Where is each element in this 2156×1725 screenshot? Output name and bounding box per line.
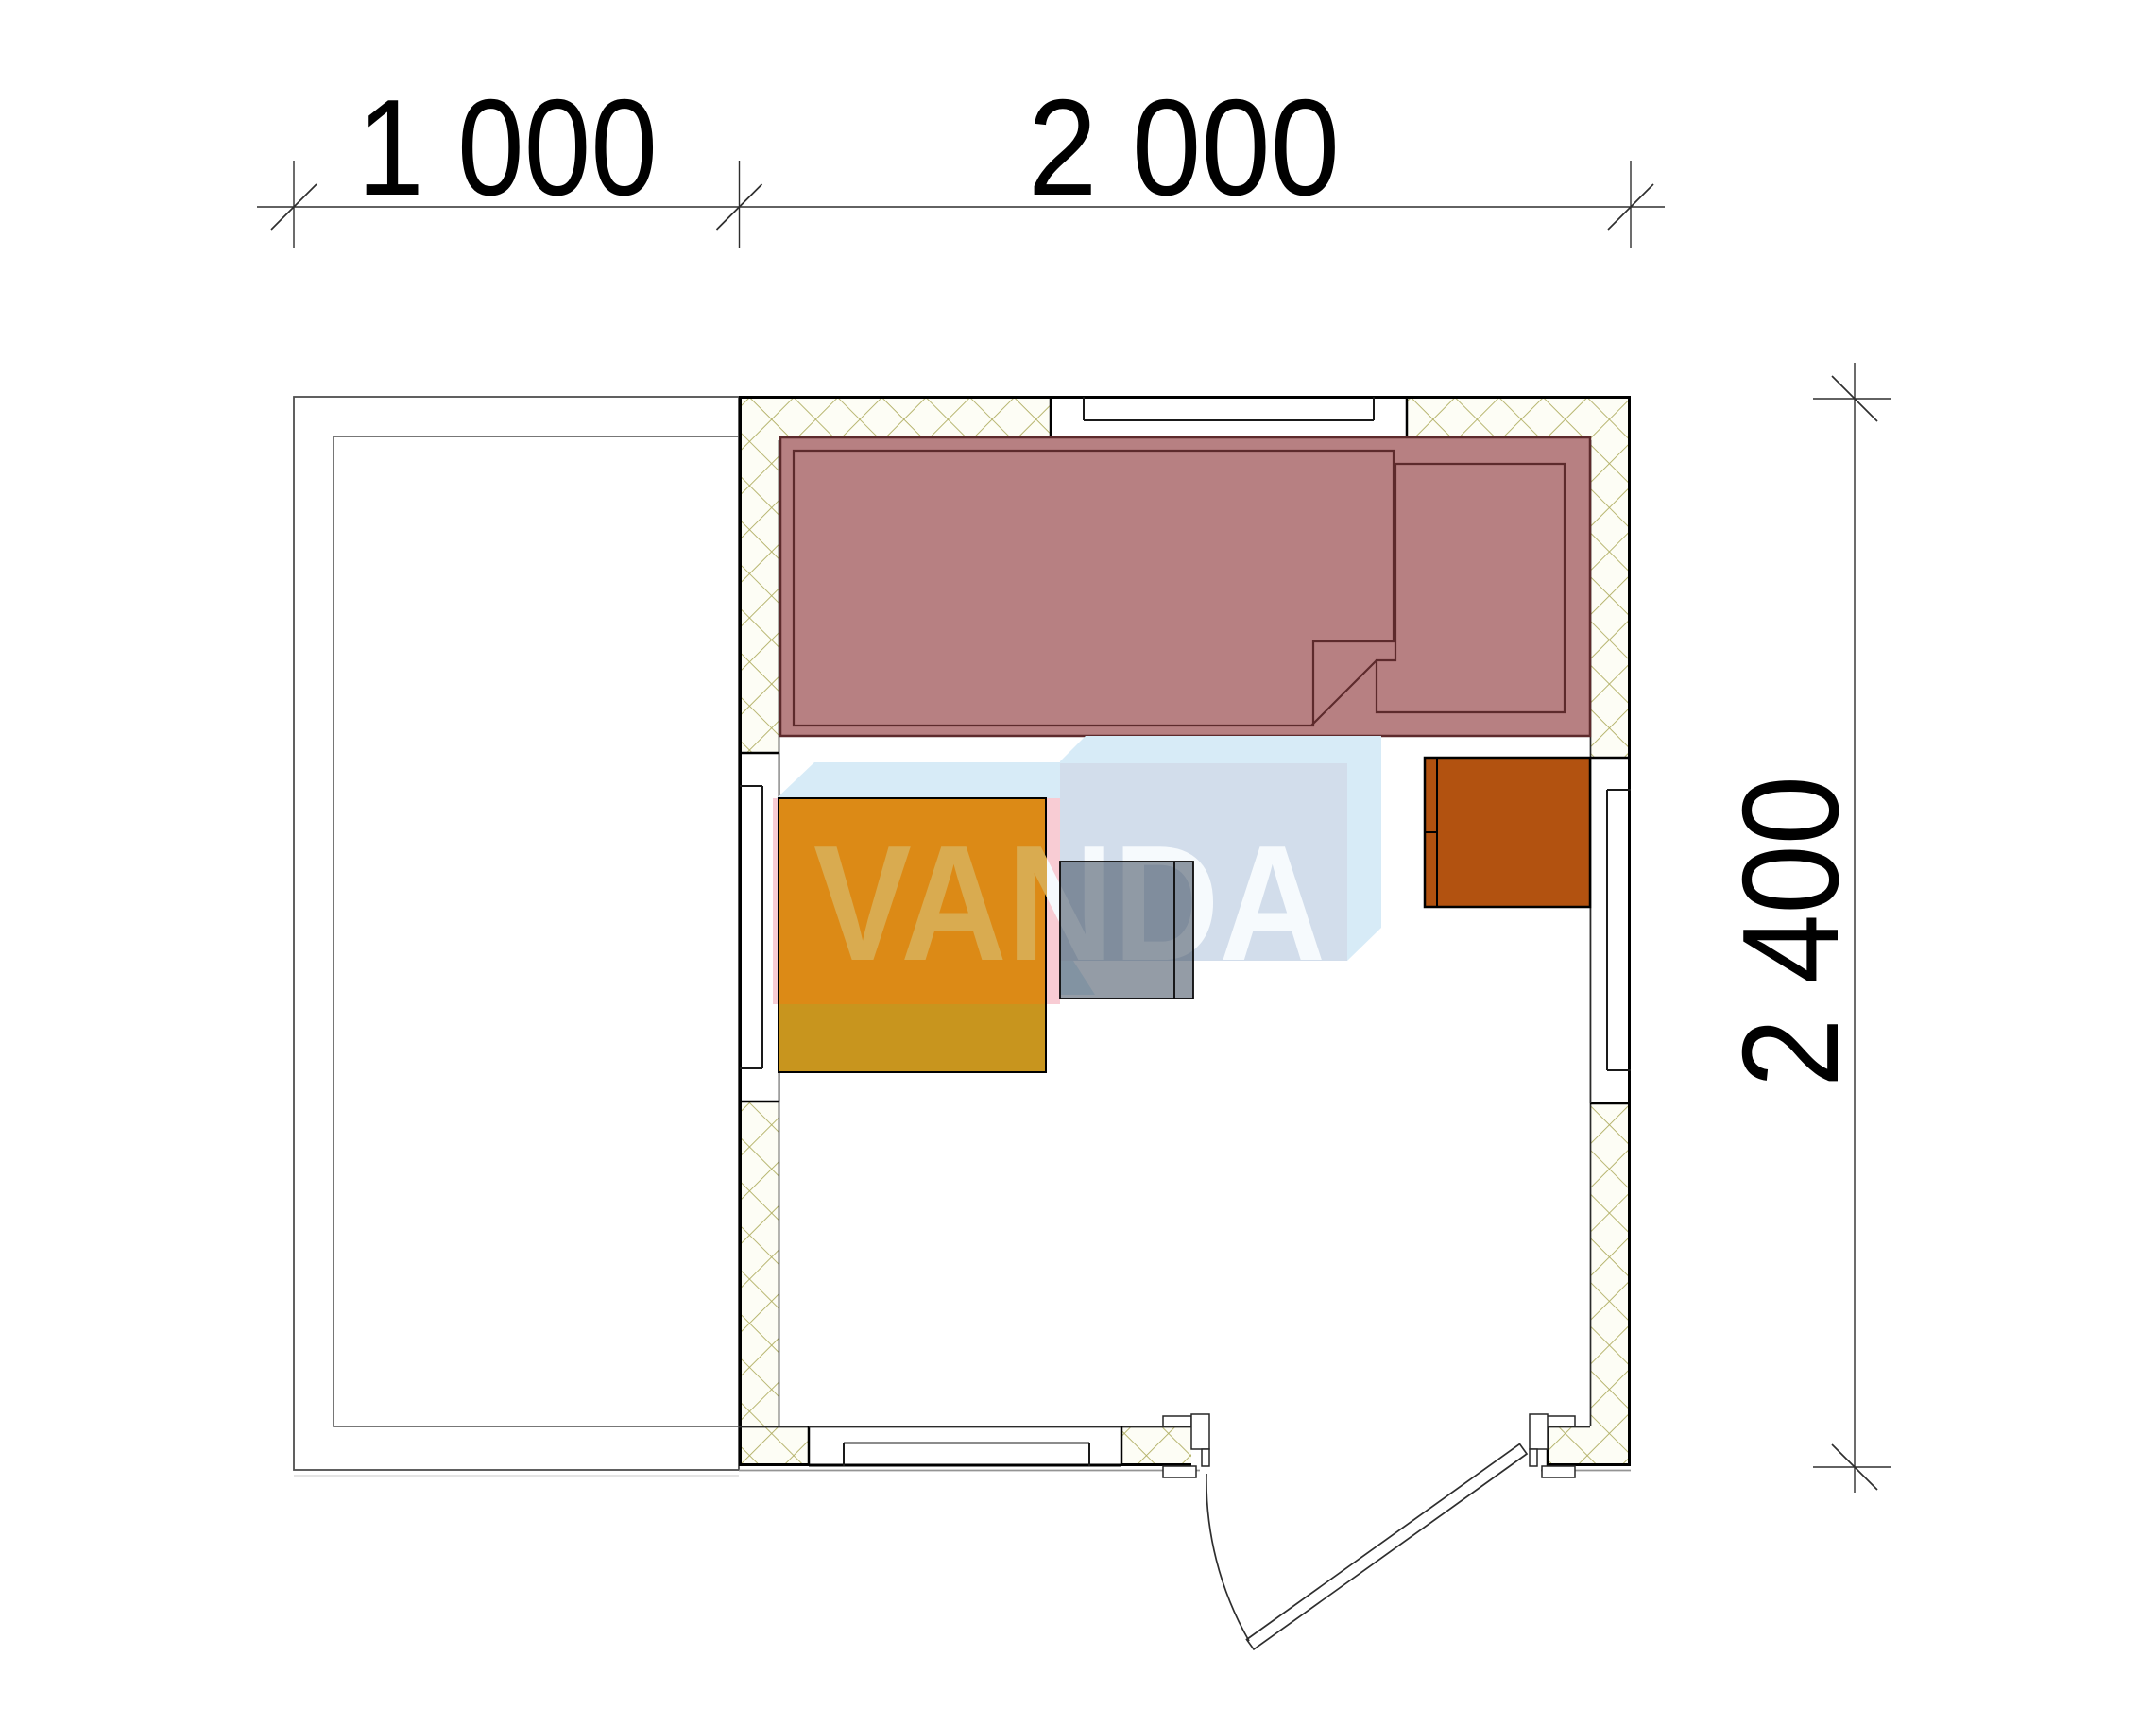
svg-text:1 000: 1 000 xyxy=(357,71,658,224)
svg-text:2 000: 2 000 xyxy=(1028,71,1340,224)
svg-text:2 400: 2 400 xyxy=(1714,776,1867,1087)
